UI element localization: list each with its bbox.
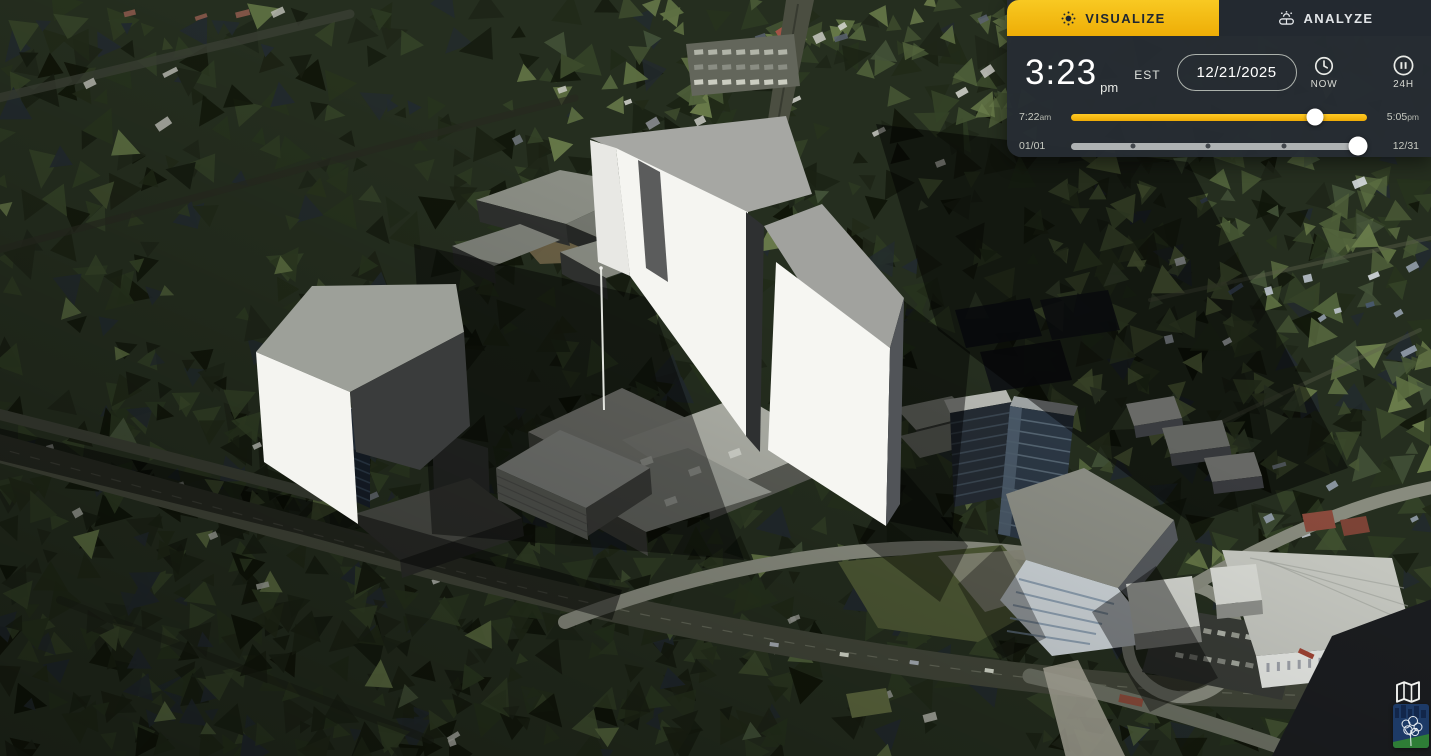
now-button[interactable]: NOW [1311, 55, 1338, 90]
current-time: 3:23 [1025, 55, 1097, 90]
loop-24h-button[interactable]: 24H [1392, 54, 1415, 90]
date-value: 12/21/2025 [1197, 64, 1277, 81]
time-control-panel: VISUALIZE ANALYZE 3:23 pm EST 12/21/2025 [1007, 0, 1431, 157]
app-window: VISUALIZE ANALYZE 3:23 pm EST 12/21/2025 [0, 0, 1431, 756]
meridiem-label: pm [1100, 80, 1118, 98]
basemap-toggle-button[interactable] [1394, 680, 1422, 704]
sun-icon [1060, 10, 1077, 27]
clock-icon [1313, 55, 1335, 77]
tab-analyze-label: ANALYZE [1304, 11, 1374, 26]
date-slider-tick [1131, 144, 1136, 149]
sun-horizon-icon [1277, 10, 1296, 27]
open-map-icon [1394, 680, 1422, 704]
time-of-day-slider[interactable] [1071, 114, 1367, 121]
now-label: NOW [1311, 79, 1338, 90]
pause-icon [1392, 54, 1415, 77]
date-slider-end-label: 12/31 [1375, 140, 1419, 152]
date-slider-tick [1282, 144, 1287, 149]
timezone-label: EST [1134, 62, 1160, 82]
date-slider-tick [1206, 144, 1211, 149]
tab-visualize-label: VISUALIZE [1085, 11, 1166, 26]
time-slider-start-label: 7:22am [1019, 111, 1063, 123]
mode-tabs: VISUALIZE ANALYZE [1007, 0, 1431, 36]
tab-visualize[interactable]: VISUALIZE [1007, 0, 1219, 36]
date-picker-button[interactable]: 12/21/2025 [1177, 54, 1297, 91]
tab-analyze[interactable]: ANALYZE [1219, 0, 1431, 36]
tree-city-logo[interactable] [1393, 704, 1429, 748]
24h-label: 24H [1393, 79, 1414, 90]
time-slider-row: 7:22am 5:05pm [1007, 104, 1431, 130]
clock-row: 3:23 pm EST 12/21/2025 NOW 24H [1007, 36, 1431, 98]
date-slider-start-label: 01/01 [1019, 140, 1063, 152]
time-slider-knob[interactable] [1307, 109, 1324, 126]
date-slider-row: 01/01 12/31 [1007, 133, 1431, 159]
tree-city-logo-art [1393, 704, 1429, 748]
date-slider-knob[interactable] [1349, 137, 1368, 156]
day-of-year-slider[interactable] [1071, 143, 1367, 150]
time-slider-end-label: 5:05pm [1375, 111, 1419, 123]
